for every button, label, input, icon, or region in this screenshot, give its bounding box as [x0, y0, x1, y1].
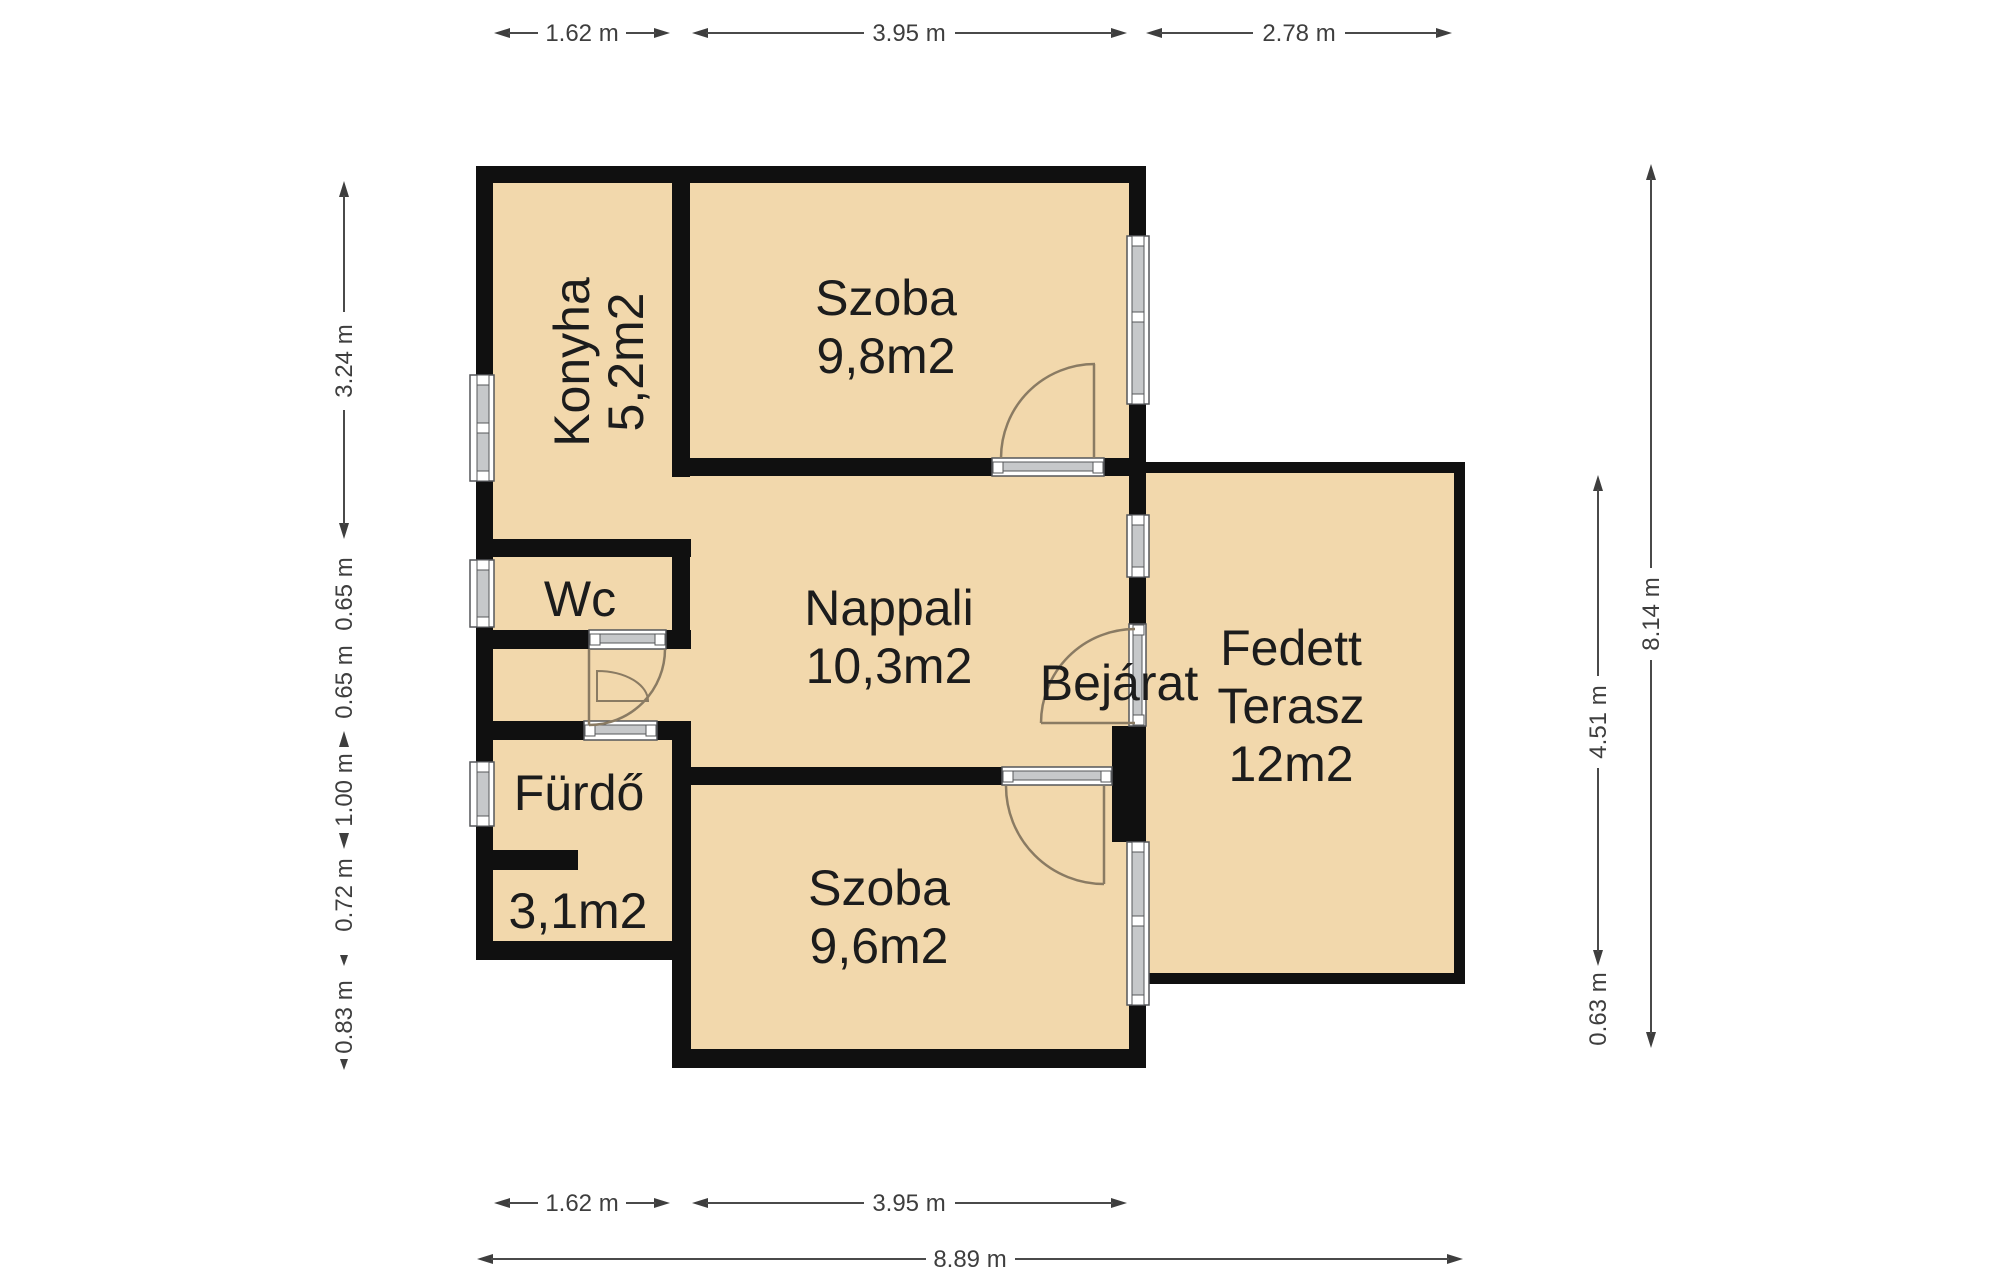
- svg-text:4.51 m: 4.51 m: [1585, 685, 1612, 758]
- svg-text:12m2: 12m2: [1228, 736, 1353, 792]
- svg-text:Bejárat: Bejárat: [1040, 655, 1199, 711]
- svg-text:8.89 m: 8.89 m: [933, 1246, 1006, 1273]
- svg-text:0.65 m: 0.65 m: [331, 645, 358, 718]
- svg-text:5,2m2: 5,2m2: [598, 293, 654, 432]
- svg-text:Szoba: Szoba: [815, 270, 957, 326]
- svg-text:0.83 m: 0.83 m: [331, 980, 358, 1053]
- svg-text:Terasz: Terasz: [1217, 678, 1364, 734]
- svg-text:1.62 m: 1.62 m: [545, 20, 618, 47]
- svg-text:Konyha: Konyha: [544, 277, 600, 447]
- svg-text:9,8m2: 9,8m2: [817, 328, 956, 384]
- svg-text:9,6m2: 9,6m2: [810, 918, 949, 974]
- svg-text:10,3m2: 10,3m2: [806, 638, 973, 694]
- svg-text:1.00 m: 1.00 m: [331, 753, 358, 826]
- svg-text:0.72 m: 0.72 m: [331, 858, 358, 931]
- svg-text:8.14 m: 8.14 m: [1638, 577, 1665, 650]
- svg-text:0.65 m: 0.65 m: [331, 557, 358, 630]
- svg-text:2.78 m: 2.78 m: [1262, 20, 1335, 47]
- svg-text:0.63 m: 0.63 m: [1585, 972, 1612, 1045]
- svg-text:Nappali: Nappali: [804, 580, 974, 636]
- svg-text:3.95 m: 3.95 m: [872, 20, 945, 47]
- svg-text:1.62 m: 1.62 m: [545, 1190, 618, 1217]
- svg-text:Wc: Wc: [544, 571, 616, 627]
- svg-text:Fürdő: Fürdő: [514, 765, 645, 821]
- svg-text:Fedett: Fedett: [1220, 620, 1362, 676]
- svg-text:Szoba: Szoba: [808, 860, 950, 916]
- svg-text:3,1m2: 3,1m2: [509, 883, 648, 939]
- svg-text:3.24 m: 3.24 m: [331, 324, 358, 397]
- svg-text:3.95 m: 3.95 m: [872, 1190, 945, 1217]
